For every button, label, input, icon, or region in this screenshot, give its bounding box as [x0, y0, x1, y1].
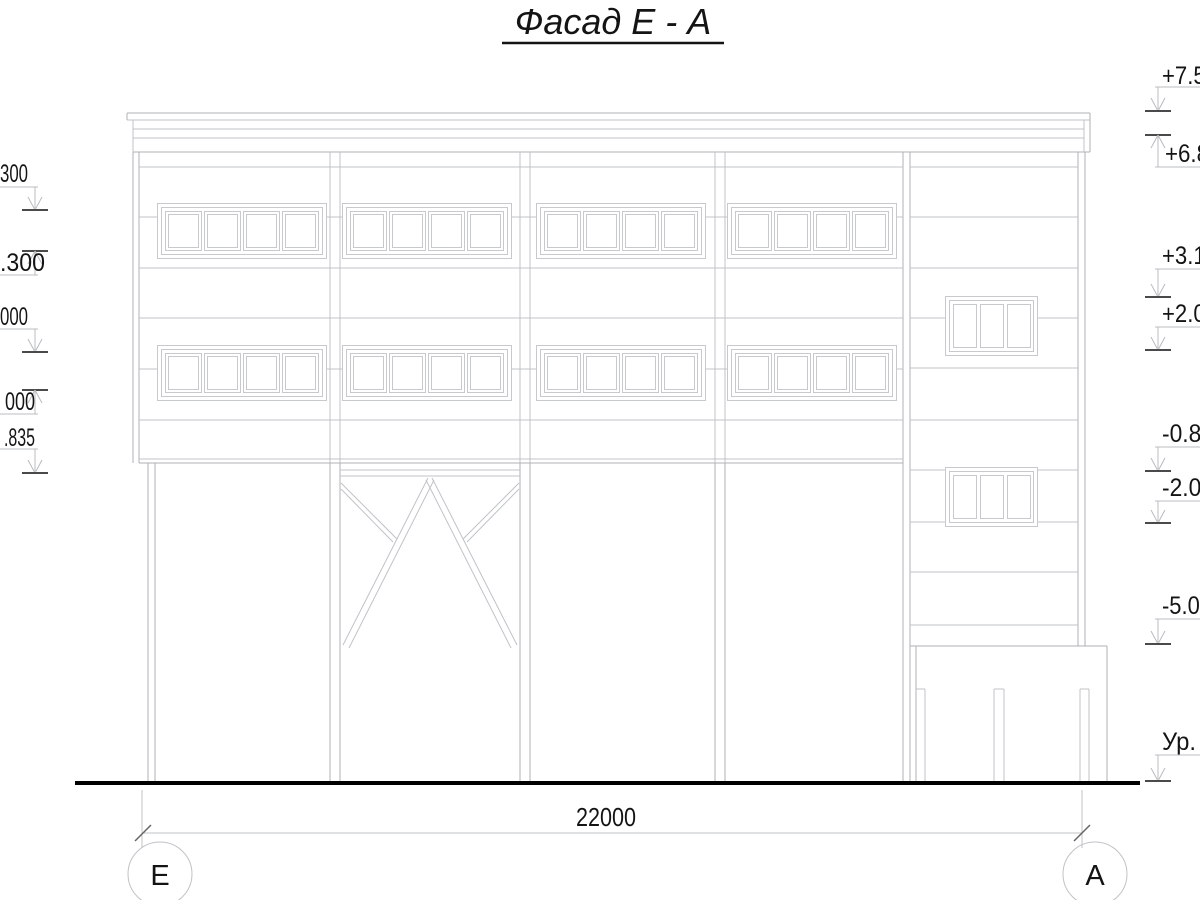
level-marker-right-1: +6.8	[1145, 135, 1200, 168]
level-marker-right-5: -2.02	[1145, 474, 1200, 523]
level-marker-right-0: +7.50	[1145, 62, 1200, 111]
level-label: .835	[4, 424, 35, 452]
level-marker-right-6: -5.00	[1145, 592, 1200, 644]
ribbon-window	[728, 204, 897, 259]
dimension-value: 22000	[576, 802, 636, 832]
level-label: -2.02	[1162, 474, 1200, 502]
page-title: Фасад Е - А	[515, 1, 712, 42]
lower-columns	[148, 463, 725, 781]
level-marker-left-4: .835	[0, 424, 48, 473]
ribbon-window	[158, 346, 327, 401]
level-marker-right-7: Ур.	[1145, 728, 1200, 781]
ribbon-window	[537, 346, 706, 401]
annex-window	[946, 297, 1038, 356]
level-label: +6.8	[1165, 140, 1200, 168]
level-label: +2.00	[1162, 300, 1200, 328]
ribbon-window	[343, 346, 512, 401]
level-label: Ур.	[1162, 728, 1196, 756]
level-marker-left-2: 000	[0, 303, 48, 352]
foundation	[910, 646, 1107, 781]
windows	[158, 204, 1038, 527]
brace-frame	[340, 470, 520, 648]
axis-bubble-e: Е	[128, 842, 192, 900]
level-marker-left-3: 000	[0, 388, 48, 416]
axis-label-e: Е	[150, 860, 169, 892]
ribbon-window	[343, 204, 512, 259]
dimension-22000: 22000	[135, 790, 1090, 848]
annex-siding	[910, 167, 1078, 625]
level-label: -0.83	[1162, 420, 1200, 448]
level-marker-left-0: 300	[0, 160, 48, 210]
parapet-band	[127, 113, 1090, 152]
axis-bubble-a: А	[1063, 842, 1127, 900]
ribbon-window	[537, 204, 706, 259]
level-label: +3.19	[1162, 242, 1200, 270]
facade-drawing-canvas: Фасад Е - А	[0, 0, 1200, 900]
drawing-title: Фасад Е - А	[502, 1, 724, 43]
level-label: 300	[0, 160, 28, 188]
level-label: 000	[5, 388, 35, 416]
level-label: +7.50	[1162, 62, 1200, 90]
level-label: -5.00	[1162, 592, 1200, 620]
annex-window	[946, 468, 1038, 527]
ribbon-window	[728, 346, 897, 401]
level-marker-left-1: .300	[0, 249, 48, 277]
level-marker-right-2: +3.19	[1145, 242, 1200, 297]
level-marker-right-3: +2.00	[1145, 300, 1200, 350]
level-label: .300	[0, 249, 45, 277]
ribbon-window	[158, 204, 327, 259]
axis-label-a: А	[1085, 860, 1105, 892]
level-label: 000	[0, 303, 28, 331]
facade-drawing: Фасад Е - А	[0, 0, 1200, 900]
level-marker-right-4: -0.83	[1145, 420, 1200, 471]
